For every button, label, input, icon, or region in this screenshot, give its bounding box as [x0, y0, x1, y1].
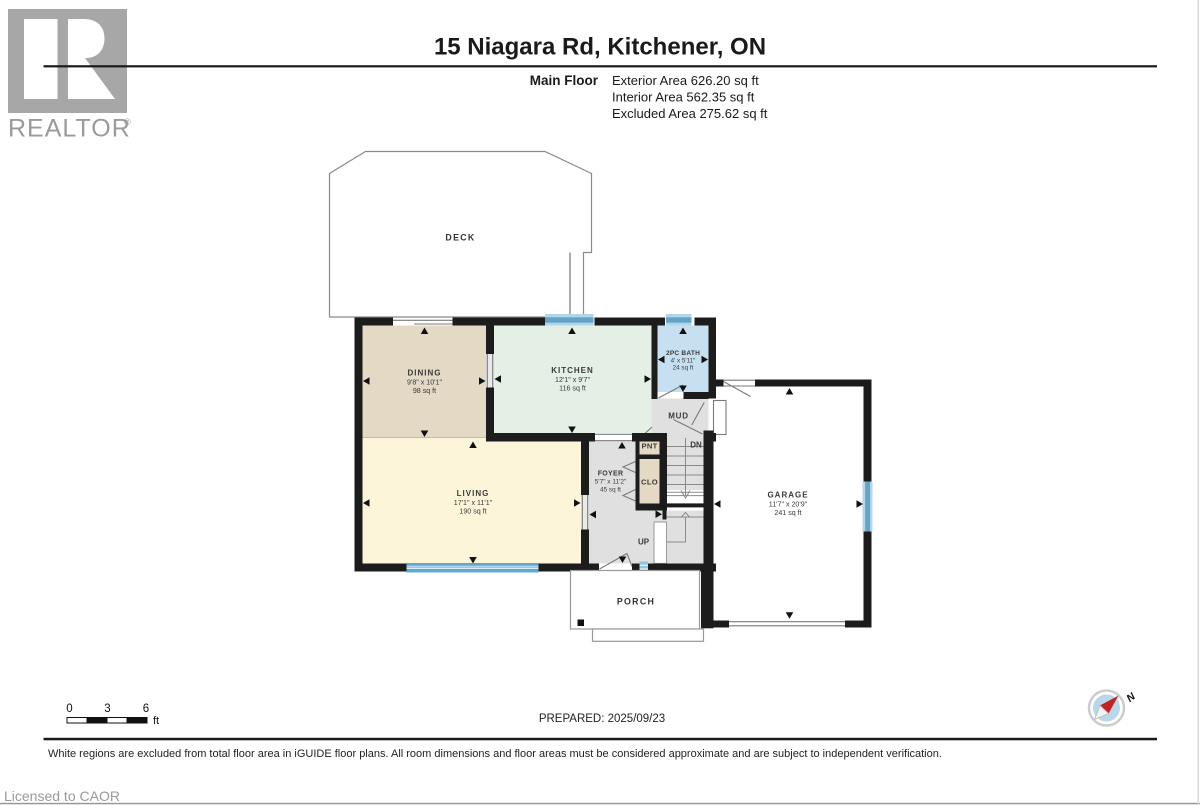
svg-text:4' x 5'11": 4' x 5'11" [671, 358, 696, 365]
svg-text:11'7" x 20'9": 11'7" x 20'9" [769, 501, 808, 509]
svg-text:190 sq ft: 190 sq ft [459, 508, 486, 516]
svg-text:DINING: DINING [408, 369, 442, 378]
svg-text:DN: DN [690, 441, 702, 450]
svg-text:REALTOR: REALTOR [8, 115, 131, 143]
svg-text:3: 3 [104, 703, 110, 715]
svg-text:LIVING: LIVING [457, 489, 490, 498]
svg-text:6: 6 [143, 703, 149, 715]
svg-text:PORCH: PORCH [617, 597, 655, 607]
svg-text:FOYER: FOYER [598, 471, 624, 478]
svg-text:KITCHEN: KITCHEN [551, 366, 594, 375]
svg-text:Exterior Area 626.20 sq ft: Exterior Area 626.20 sq ft [612, 73, 759, 88]
svg-text:2PC BATH: 2PC BATH [666, 350, 700, 357]
svg-text:UP: UP [638, 538, 650, 547]
svg-text:Excluded Area 275.62 sq ft: Excluded Area 275.62 sq ft [612, 106, 768, 121]
svg-text:PNT: PNT [641, 442, 657, 451]
svg-text:ft: ft [153, 715, 159, 727]
svg-text:17'1" x 11'1": 17'1" x 11'1" [454, 499, 493, 507]
svg-text:Main Floor: Main Floor [530, 73, 599, 88]
svg-text:PREPARED: 2025/09/23: PREPARED: 2025/09/23 [539, 713, 665, 725]
svg-text:45 sq ft: 45 sq ft [600, 487, 621, 494]
svg-text:White regions are excluded fro: White regions are excluded from total fl… [48, 748, 942, 760]
svg-text:®: ® [124, 117, 131, 127]
svg-text:12'1" x 9'7": 12'1" x 9'7" [555, 376, 590, 384]
svg-text:DECK: DECK [445, 233, 475, 243]
svg-text:241 sq ft: 241 sq ft [774, 509, 801, 517]
svg-text:116 sq ft: 116 sq ft [559, 385, 586, 393]
svg-text:5'7" x 11'2": 5'7" x 11'2" [595, 479, 627, 486]
svg-text:98 sq ft: 98 sq ft [413, 387, 436, 395]
svg-text:CLO: CLO [641, 478, 658, 487]
svg-text:9'8" x 10'1": 9'8" x 10'1" [407, 379, 442, 387]
svg-text:Licensed to CAOR: Licensed to CAOR [4, 788, 120, 804]
svg-text:0: 0 [66, 703, 72, 715]
svg-text:24 sq ft: 24 sq ft [673, 365, 694, 372]
svg-text:15 Niagara Rd, Kitchener, ON: 15 Niagara Rd, Kitchener, ON [434, 34, 766, 61]
svg-text:Interior Area 562.35 sq ft: Interior Area 562.35 sq ft [612, 90, 755, 105]
svg-text:GARAGE: GARAGE [767, 491, 808, 500]
svg-text:MUD: MUD [668, 412, 689, 421]
